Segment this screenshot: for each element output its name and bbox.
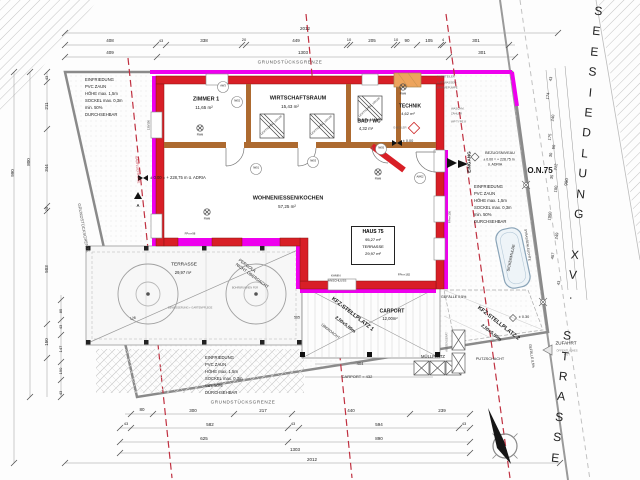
street-letter: E bbox=[578, 43, 610, 66]
street-letter: S bbox=[576, 63, 608, 86]
street-letter: N bbox=[565, 185, 597, 208]
street-letter bbox=[561, 226, 593, 249]
street-letter: I bbox=[574, 84, 606, 107]
street-letter: . bbox=[555, 287, 587, 310]
street-letter: A bbox=[545, 388, 577, 411]
north-arrow bbox=[488, 408, 518, 464]
street-letter: D bbox=[570, 124, 602, 147]
street-letter: T bbox=[549, 348, 581, 371]
carport bbox=[300, 284, 440, 358]
street-letter: X bbox=[559, 246, 591, 269]
street-letter: E bbox=[572, 104, 604, 127]
street-letter: V bbox=[557, 266, 589, 289]
haus-terrasse-area: 29,97 m² bbox=[352, 251, 394, 256]
street-letter bbox=[553, 307, 585, 330]
street-letter: E bbox=[580, 23, 612, 46]
street-letter: U bbox=[566, 165, 598, 188]
street-letter: L bbox=[568, 145, 600, 168]
street-letter: R bbox=[547, 368, 579, 391]
street-letter: G bbox=[563, 206, 595, 229]
street-letter: S bbox=[543, 408, 575, 431]
haus-area: 95,27 m² bbox=[352, 237, 394, 242]
street-letter: E bbox=[539, 449, 571, 472]
street-letter: S bbox=[541, 429, 573, 452]
heatpump-outdoor-units bbox=[452, 330, 465, 373]
haus-title: HAUS 75 bbox=[352, 229, 394, 235]
street-letter: S bbox=[551, 327, 583, 350]
street-letter: S bbox=[582, 3, 614, 26]
site-plan: 2012408433382044910205109010543014091303… bbox=[0, 0, 640, 480]
terrace-pergola bbox=[86, 246, 304, 393]
heatpump-unit bbox=[394, 73, 421, 87]
haus-terrasse-label: TERRASSE bbox=[352, 244, 394, 249]
paving-herringbone bbox=[96, 349, 304, 393]
haus-info-box: HAUS 75 95,27 m² TERRASSE 29,97 m² bbox=[351, 226, 395, 265]
